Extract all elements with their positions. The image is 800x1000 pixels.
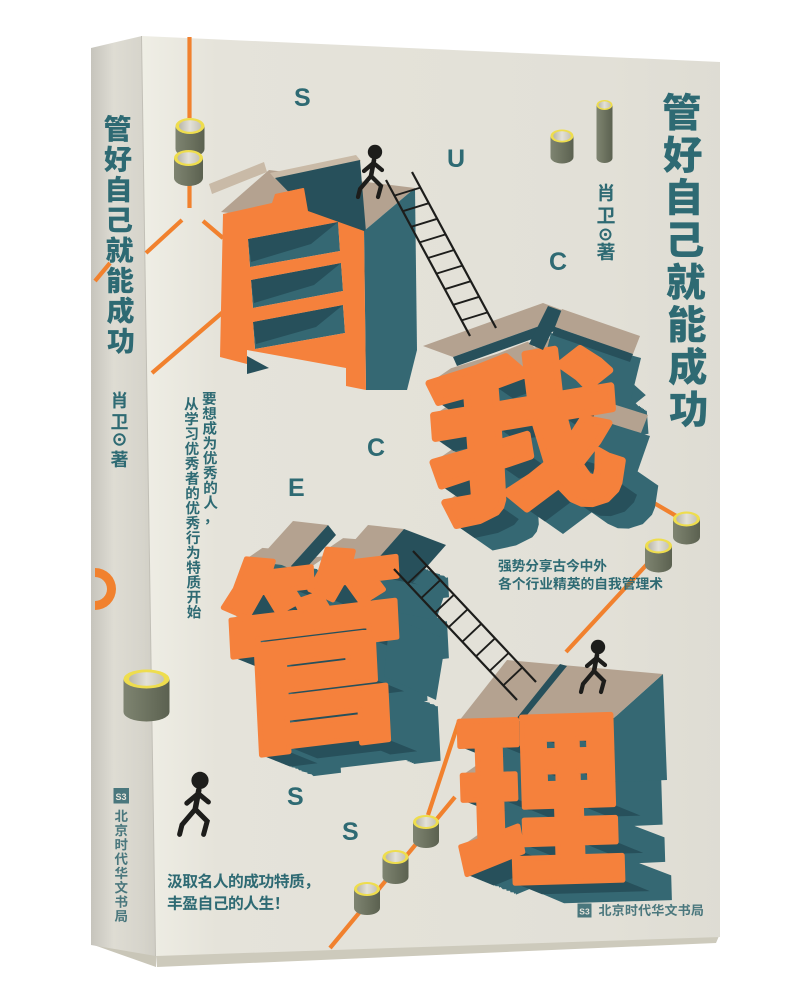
svg-text:E: E bbox=[288, 474, 305, 502]
svg-text:S: S bbox=[294, 84, 311, 112]
svg-text:3: 3 bbox=[122, 792, 127, 802]
svg-text:S: S bbox=[342, 818, 359, 846]
svg-text:C: C bbox=[367, 434, 385, 462]
svg-text:U: U bbox=[447, 145, 465, 173]
svg-text:C: C bbox=[549, 248, 567, 276]
svg-text:3: 3 bbox=[585, 907, 590, 917]
svg-text:S: S bbox=[287, 783, 304, 811]
